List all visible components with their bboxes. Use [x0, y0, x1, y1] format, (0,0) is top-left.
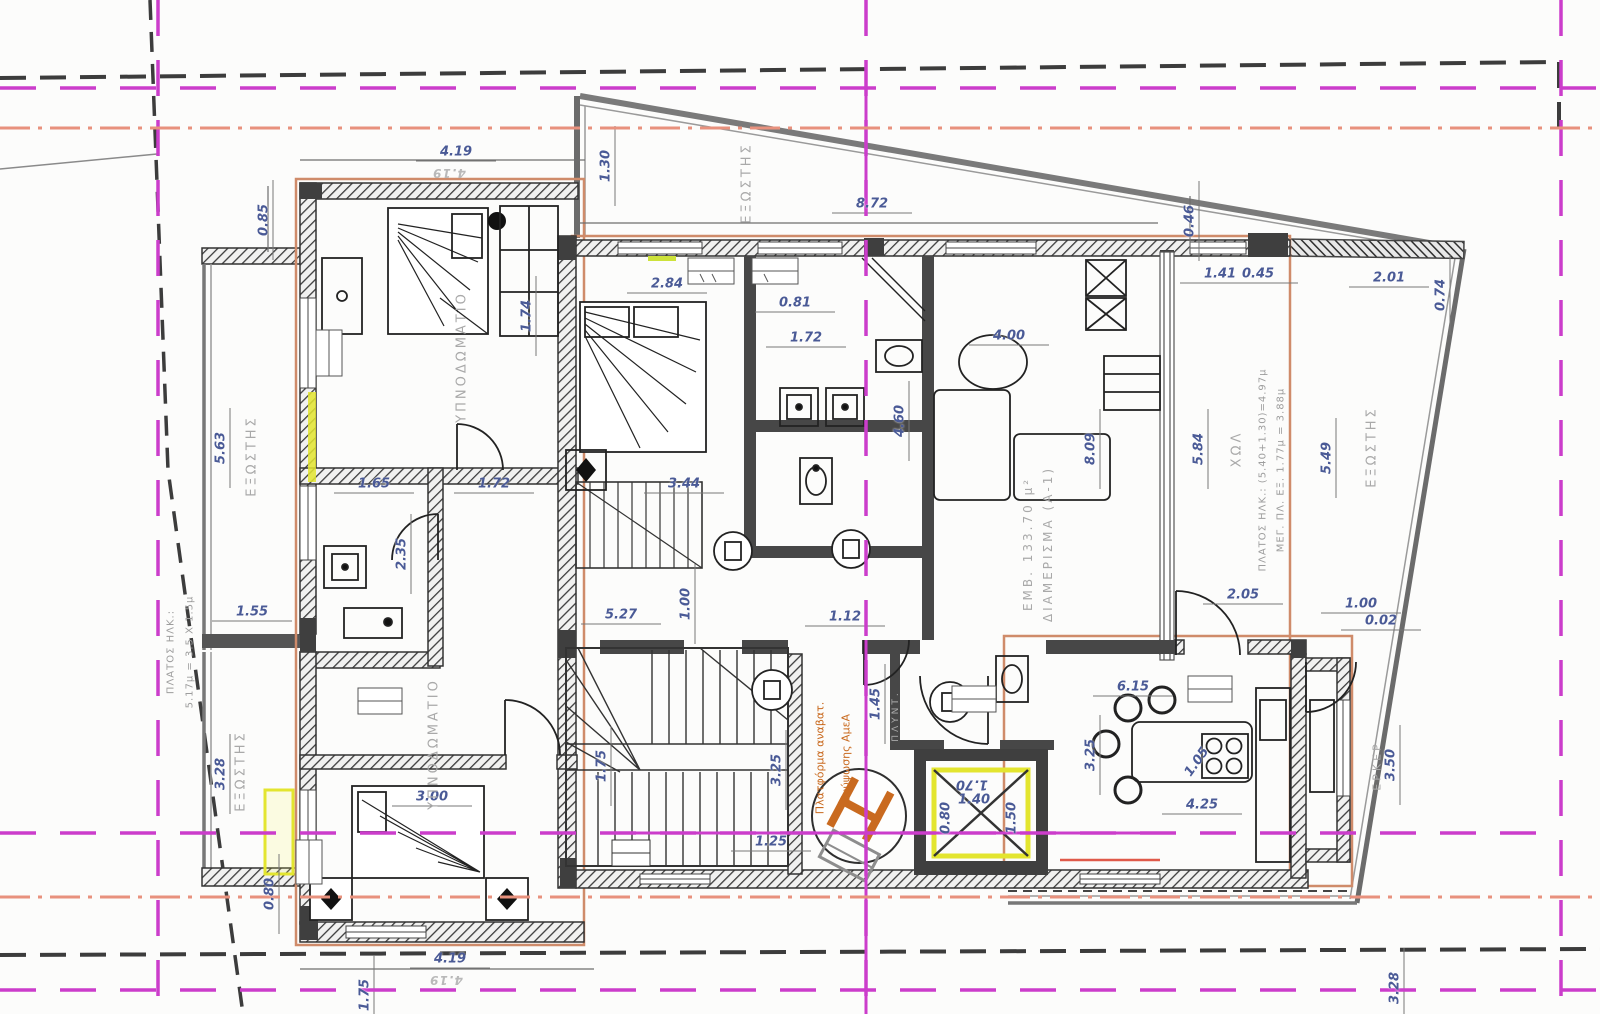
chair: [1115, 777, 1141, 803]
bay-seat: [1310, 700, 1334, 792]
bed: [580, 302, 706, 452]
floor-plan: 4.190.851.308.722.840.811.721.410.452.01…: [0, 0, 1600, 1014]
platform-lift: [811, 769, 907, 881]
kitchen-sink: [1260, 700, 1286, 740]
window-sill-highlight: [648, 256, 676, 261]
lamp: [488, 212, 506, 230]
toilet: [876, 340, 922, 372]
side-table: [959, 335, 1027, 389]
shower: [862, 258, 925, 321]
cabinet: [1104, 356, 1160, 410]
wall-highlight-yellow: [308, 392, 316, 482]
elevator: [914, 749, 1048, 875]
chair: [1093, 731, 1119, 757]
chair: [1149, 687, 1175, 713]
lamp-diamond: [576, 458, 596, 482]
sofa: [1014, 434, 1110, 500]
sofa: [934, 390, 1010, 500]
chair: [1115, 695, 1141, 721]
glass-wall: [1160, 252, 1174, 660]
counter: [344, 608, 402, 638]
bed: [388, 208, 488, 334]
door-arc: [1176, 591, 1240, 655]
dresser: [322, 258, 362, 334]
round-sink: [752, 670, 792, 710]
door-arc: [505, 700, 560, 755]
floor-plan-drawing: [0, 0, 1600, 1014]
round-sink: [714, 532, 752, 570]
counter: [1256, 688, 1290, 862]
door-arc: [457, 424, 503, 470]
toilet: [996, 656, 1028, 702]
